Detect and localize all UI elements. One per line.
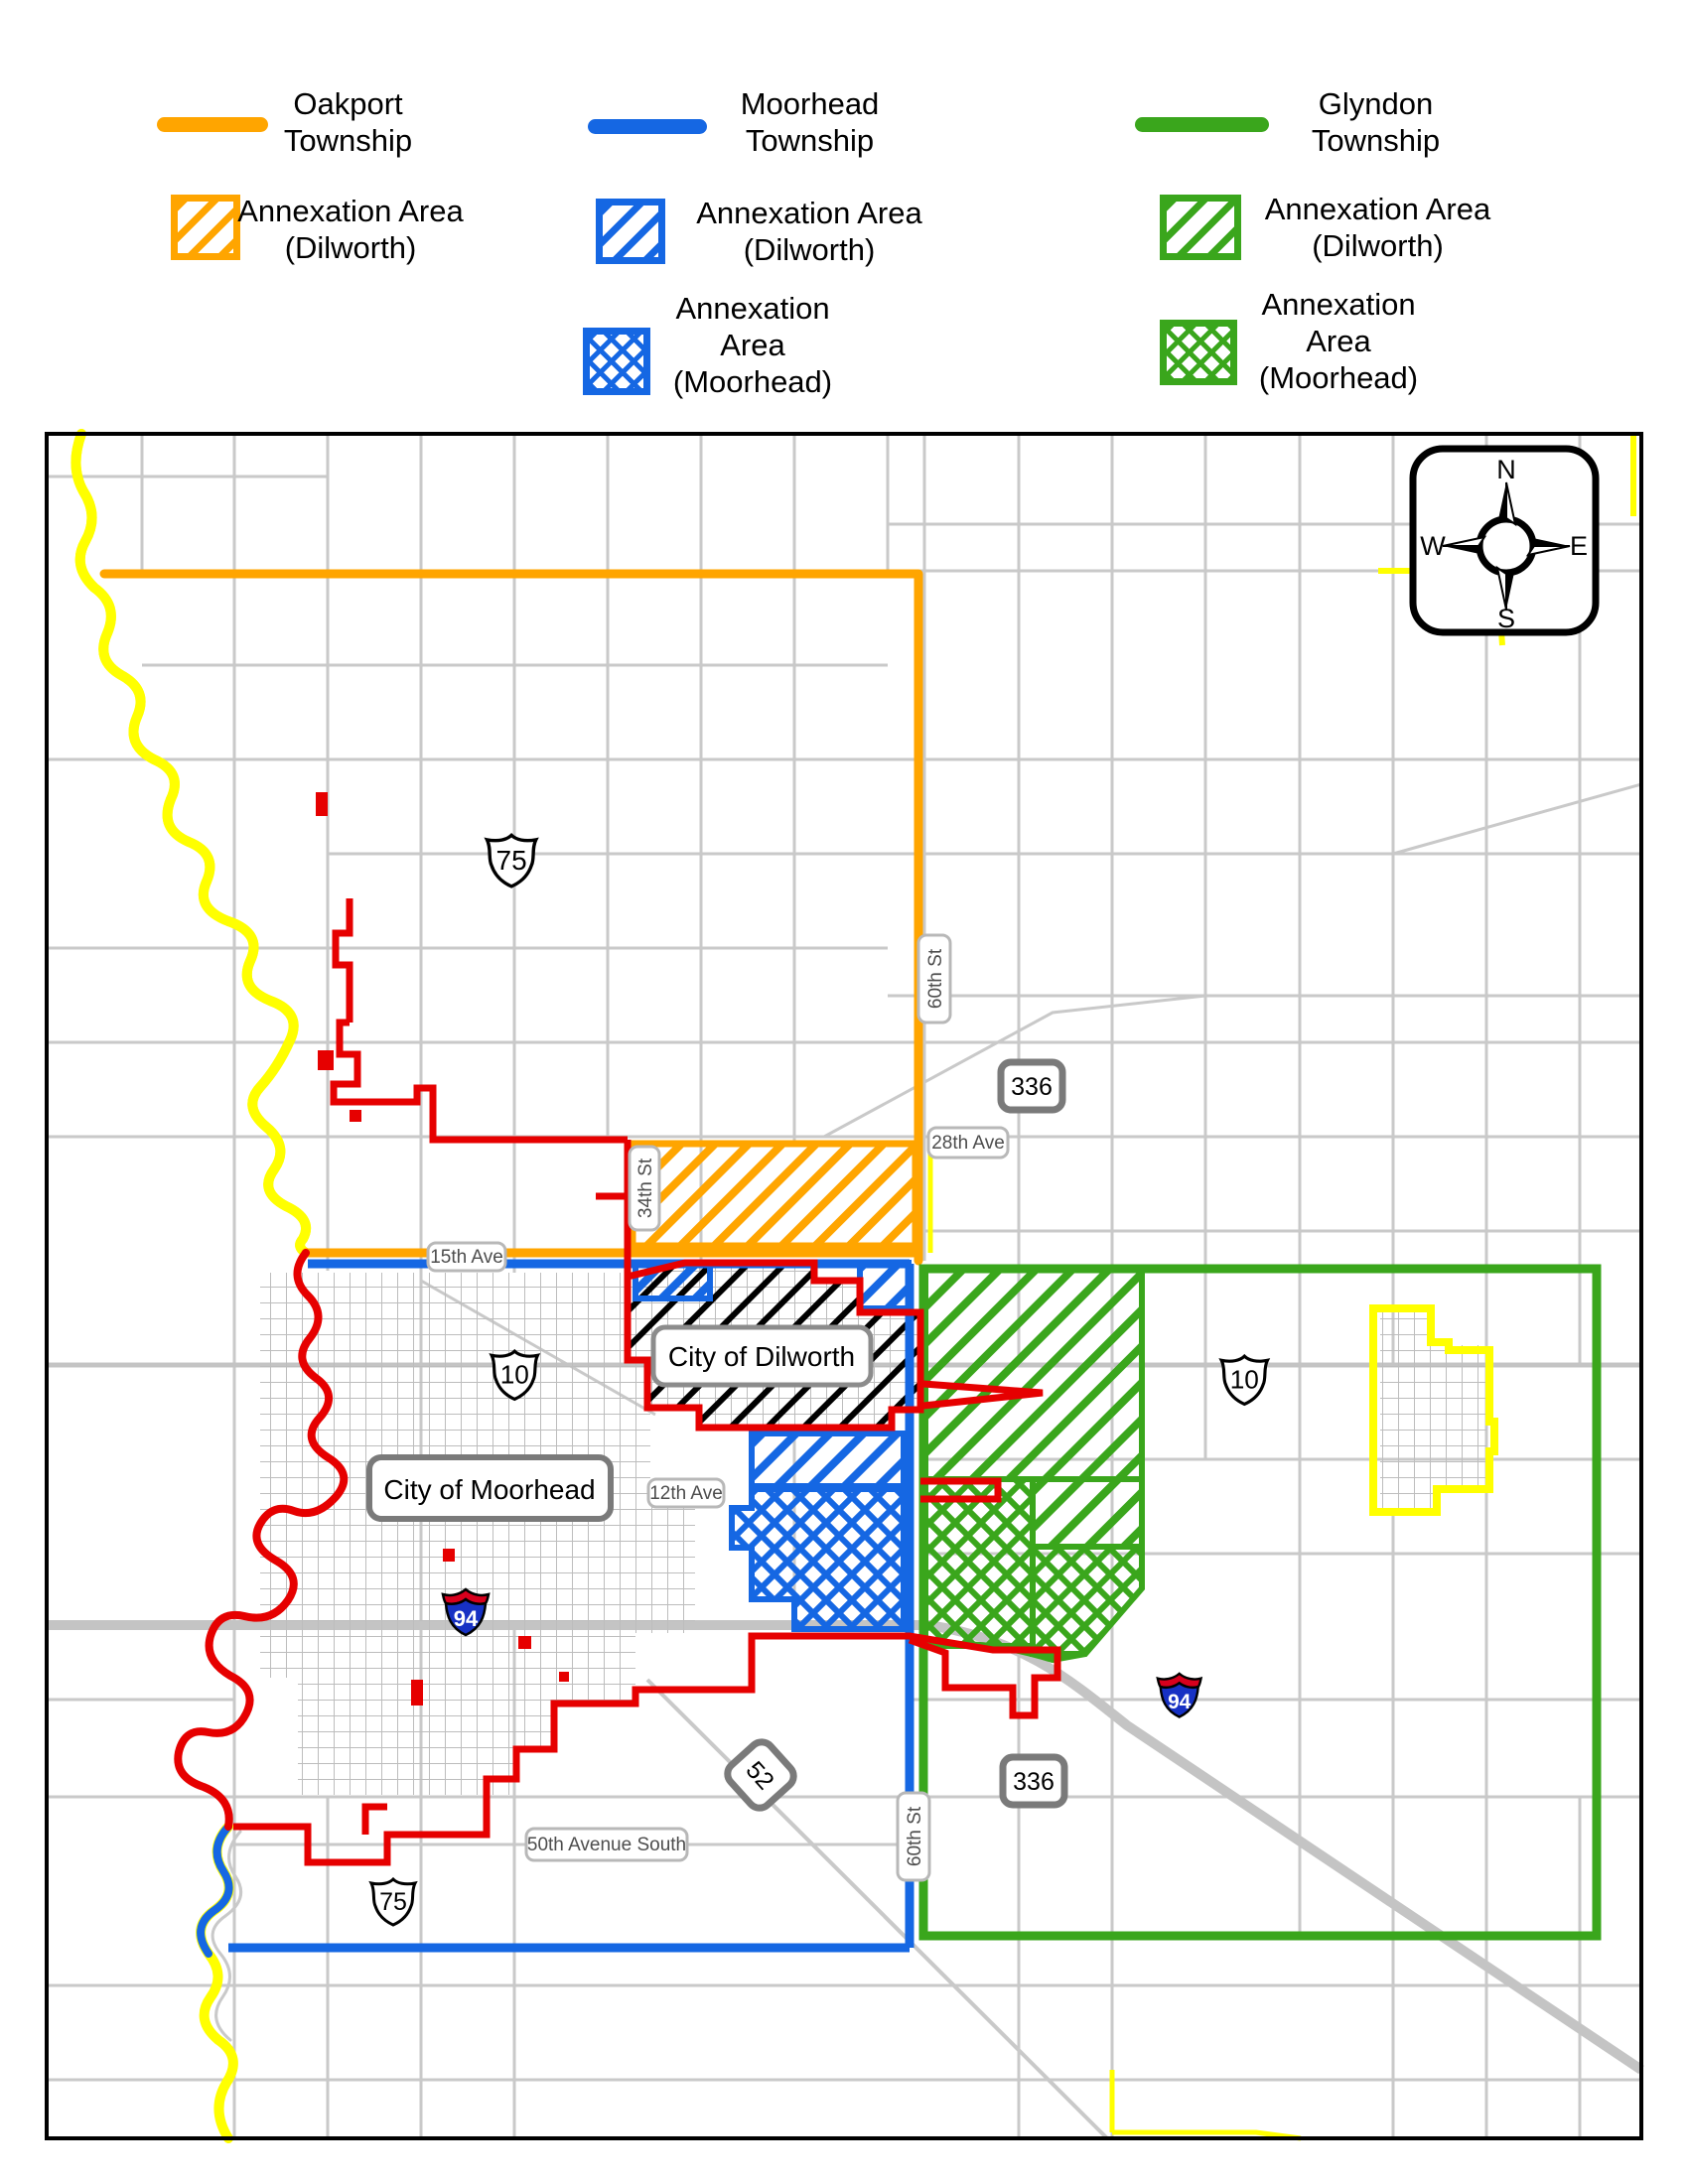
svg-text:50th Avenue South: 50th Avenue South: [527, 1835, 686, 1855]
svg-text:75: 75: [496, 845, 527, 876]
svg-text:City of Moorhead: City of Moorhead: [383, 1474, 595, 1505]
svg-text:94: 94: [454, 1606, 479, 1631]
city-label-dilworth: City of Dilworth: [653, 1327, 871, 1385]
svg-text:10: 10: [500, 1360, 529, 1390]
svg-text:75: 75: [379, 1888, 407, 1916]
svg-text:336: 336: [1011, 1073, 1053, 1101]
street-label-12th-ave: 12th Ave: [648, 1479, 724, 1507]
street-label-60th-st-top: 60th St: [918, 935, 950, 1023]
map-canvas: 60th St 28th Ave 34th St 15th Ave 12th A…: [0, 0, 1688, 2184]
cr336-shield-bottom: 336: [1003, 1757, 1064, 1805]
glyndon-annexation-dilworth-area: [925, 1269, 1142, 1479]
cr336-shield-top: 336: [1001, 1062, 1062, 1110]
compass-e: E: [1570, 531, 1588, 561]
svg-text:12th Ave: 12th Ave: [649, 1483, 723, 1504]
compass-w: W: [1420, 531, 1446, 561]
svg-text:336: 336: [1013, 1768, 1055, 1796]
city-label-moorhead: City of Moorhead: [369, 1457, 611, 1519]
street-label-15th-ave: 15th Ave: [428, 1243, 505, 1271]
street-label-34th-st: 34th St: [630, 1147, 659, 1230]
compass-s: S: [1497, 604, 1515, 633]
map-page: Oakport Township Annexation Area (Dilwor…: [0, 0, 1688, 2184]
glyndon-annexation-dilworth-south: [1033, 1479, 1142, 1547]
street-label-28th-ave: 28th Ave: [928, 1128, 1008, 1158]
svg-text:10: 10: [1230, 1365, 1259, 1395]
glyndon-annexation-moorhead-west: [925, 1479, 1033, 1646]
compass-n: N: [1496, 455, 1516, 484]
svg-text:94: 94: [1168, 1691, 1192, 1713]
moorhead-annexation-dilworth-south: [752, 1433, 904, 1486]
svg-text:34th St: 34th St: [635, 1158, 656, 1218]
street-label-50th-ave-south: 50th Avenue South: [526, 1829, 687, 1860]
svg-text:City of Dilworth: City of Dilworth: [668, 1341, 855, 1372]
svg-text:60th St: 60th St: [925, 948, 946, 1009]
street-label-60th-st-bottom: 60th St: [898, 1793, 929, 1880]
compass-rose: N E S W: [1413, 449, 1596, 633]
oakport-annexation-area-dilworth: [633, 1144, 915, 1246]
svg-text:28th Ave: 28th Ave: [931, 1133, 1005, 1154]
svg-text:60th St: 60th St: [905, 1806, 925, 1866]
moorhead-annexation-dilworth-east: [860, 1263, 909, 1308]
svg-text:15th Ave: 15th Ave: [430, 1247, 503, 1268]
